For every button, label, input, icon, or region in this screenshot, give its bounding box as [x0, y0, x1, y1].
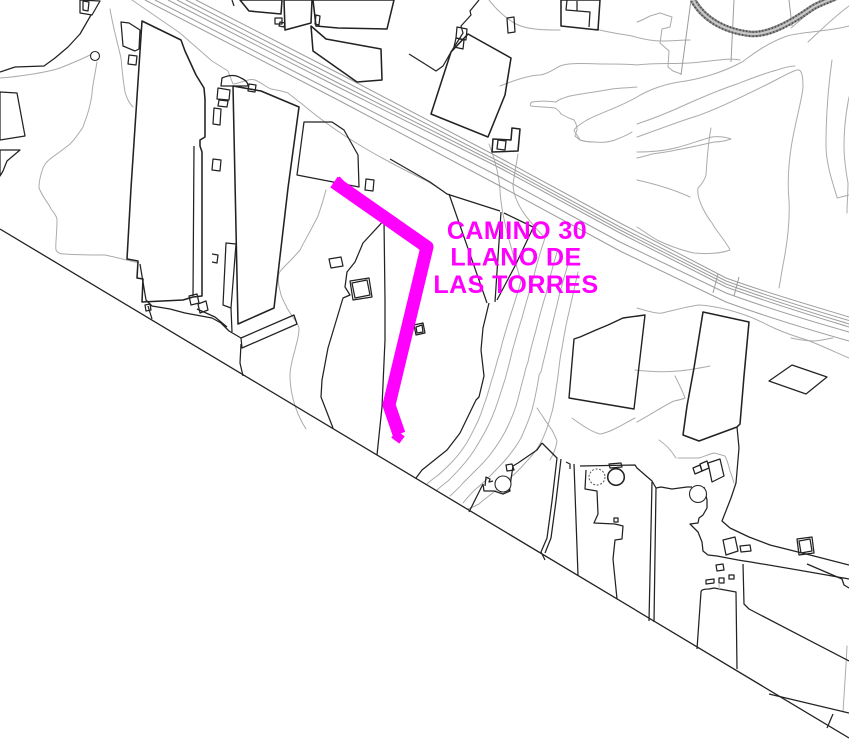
- svg-text:LLANO DE: LLANO DE: [450, 244, 581, 272]
- svg-text:LAS TORRES: LAS TORRES: [433, 271, 598, 299]
- svg-text:CAMINO 30: CAMINO 30: [447, 217, 587, 245]
